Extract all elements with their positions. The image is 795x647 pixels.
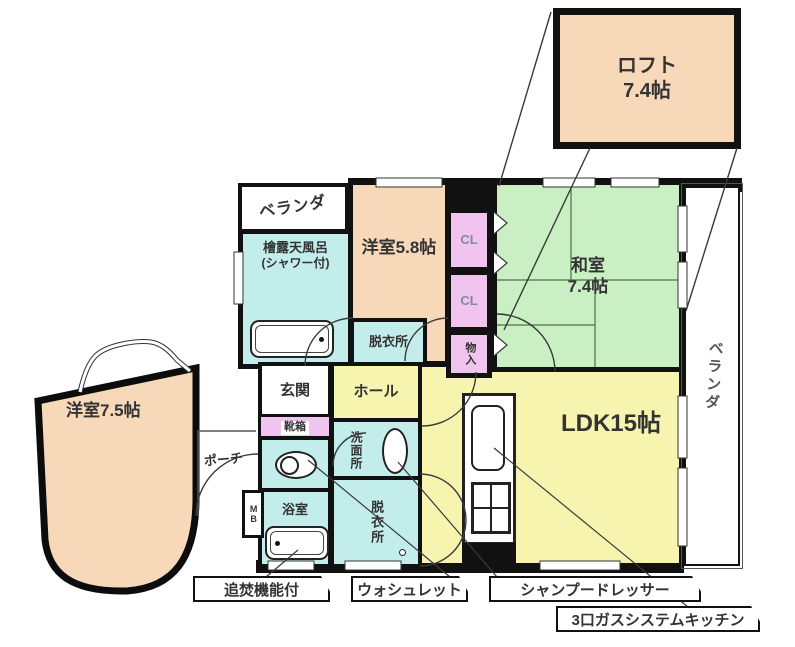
callout-gas-kitchen: 3口ガスシステムキッチン [556,606,760,632]
room-hall: ホール [330,362,422,422]
room-entrance: 玄関 [258,362,332,420]
room-closet-1-label: CL [460,232,477,248]
room-ldk-label: LDK15帖 [561,409,661,439]
room-japanese: 和室 7.4帖 [492,180,684,372]
kitchen-sink-icon [471,405,505,471]
room-dressing-lower-label: 脱衣所 [368,500,384,545]
stove-icon [471,482,511,534]
room-dressing-upper-label: 脱衣所 [369,334,408,350]
room-veranda-top-label: ベランダ [258,193,328,223]
room-japanese-label: 和室 7.4帖 [568,255,609,298]
room-bathroom: 浴室 [258,488,332,568]
room-washroom-label: 洗面所 [348,431,363,470]
callout-reheat: 追焚機能付 [193,576,330,602]
room-western-75-label: 洋室7.5帖 [66,400,141,421]
room-veranda-right-label: ベランダ [700,339,724,412]
door-handle-mark [399,549,406,556]
room-ldk: LDK15帖 [413,362,684,568]
room-storage: 物入 [446,330,492,378]
room-loft: ロフト 7.4帖 [553,8,741,149]
room-washroom: 洗面所 [330,418,422,482]
bathtub2-icon [265,526,329,560]
bathtub-icon [250,320,334,358]
kitchen-wall [462,543,516,570]
room-bath-hinoki-label1: 檜露天風呂 [262,240,330,256]
room-shoe-box-label: 靴箱 [281,421,309,435]
room-bathroom-label: 浴室 [282,502,308,518]
room-entrance-label: 玄関 [280,382,310,401]
room-loft-label: ロフト 7.4帖 [617,54,677,104]
floor-plan: LDK15帖 ベランダ 檜露天風呂 (シャワー付) 洋室5.8帖 脱衣所 [0,0,795,647]
room-dressing-upper: 脱衣所 [350,318,427,366]
bay-window-icon [80,342,190,392]
room-veranda-top: ベランダ [238,183,349,233]
callout-shampoo-dresser: シャンプードレッサー [489,576,701,602]
toilet-icon [275,451,315,477]
room-dressing-lower: 脱衣所 [330,476,422,568]
room-veranda-right: ベランダ [684,186,740,566]
washbasin-icon [382,428,408,474]
room-toilet [258,436,332,492]
room-bath-hinoki-label2: (シャワー付) [262,256,330,271]
room-closet-2-label: CL [460,293,477,309]
room-storage-label: 物入 [462,342,476,366]
room-western-58-label: 洋室5.8帖 [362,237,437,258]
porch-label: ポーチ [203,450,243,470]
room-hall-label: ホール [353,383,398,402]
room-closet-1: CL [446,208,492,272]
callout-washlet: ウォシュレット [351,576,468,602]
meter-box-label: MB [247,504,258,524]
meter-box: MB [242,490,264,538]
kitchen-counter [462,393,516,545]
room-closet-2: CL [446,270,492,332]
room-bath-hinoki: 檜露天風呂 (シャワー付) [238,229,353,369]
